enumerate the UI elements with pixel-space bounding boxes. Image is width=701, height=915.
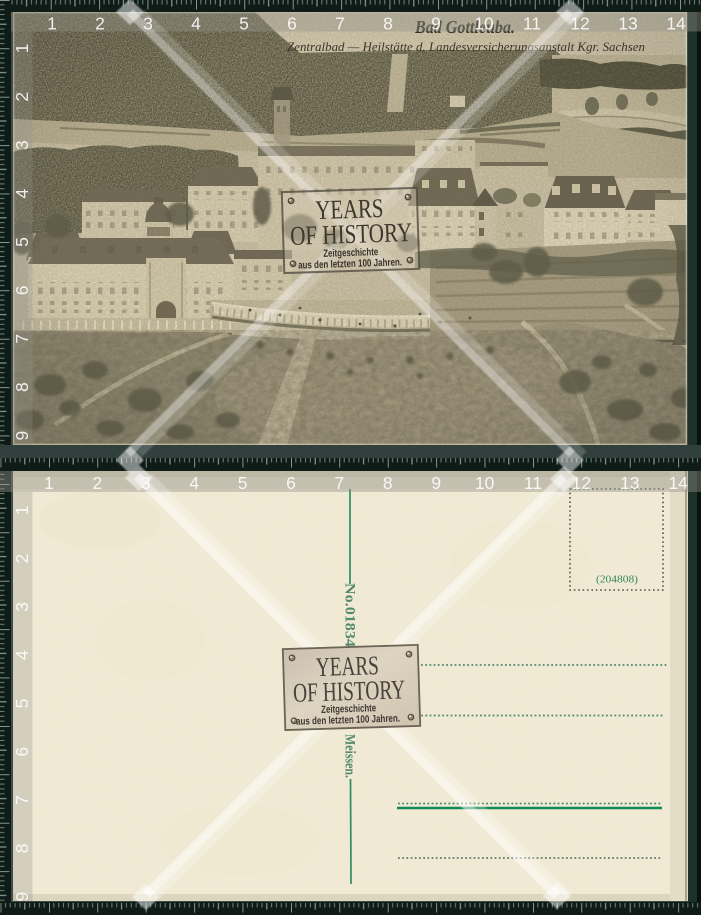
svg-text:14: 14 — [668, 473, 688, 493]
svg-text:11: 11 — [524, 473, 542, 493]
svg-text:6: 6 — [12, 286, 32, 296]
svg-text:3: 3 — [12, 140, 32, 150]
svg-text:OF HISTORY: OF HISTORY — [290, 217, 413, 251]
svg-text:13: 13 — [618, 14, 637, 34]
svg-text:5: 5 — [239, 14, 249, 34]
svg-text:14: 14 — [666, 14, 686, 34]
svg-text:6: 6 — [12, 747, 32, 757]
svg-text:4: 4 — [12, 650, 32, 660]
svg-text:11: 11 — [523, 14, 541, 34]
svg-text:5: 5 — [12, 237, 32, 247]
svg-text:7: 7 — [12, 334, 32, 344]
svg-text:10: 10 — [475, 473, 495, 493]
svg-text:2: 2 — [12, 92, 32, 102]
svg-text:2: 2 — [93, 473, 103, 493]
svg-text:No.018348: No.018348 — [342, 583, 358, 655]
svg-text:3: 3 — [12, 602, 32, 612]
svg-text:4: 4 — [189, 473, 199, 493]
svg-text:5: 5 — [238, 473, 248, 493]
svg-text:5: 5 — [12, 699, 32, 709]
svg-text:10: 10 — [474, 14, 494, 34]
svg-text:8: 8 — [12, 844, 32, 854]
svg-text:(204808): (204808) — [596, 575, 639, 586]
svg-text:Meissen.: Meissen. — [342, 734, 358, 778]
svg-text:2: 2 — [95, 14, 105, 34]
svg-text:8: 8 — [12, 382, 32, 392]
svg-text:1: 1 — [44, 473, 54, 493]
svg-text:4: 4 — [12, 188, 32, 198]
svg-text:8: 8 — [383, 14, 393, 34]
svg-text:6: 6 — [287, 14, 297, 34]
svg-text:8: 8 — [383, 473, 393, 493]
svg-text:2: 2 — [12, 554, 32, 564]
svg-text:4: 4 — [191, 14, 201, 34]
svg-text:7: 7 — [12, 795, 32, 805]
svg-text:9: 9 — [12, 431, 32, 441]
svg-text:1: 1 — [12, 44, 32, 54]
svg-text:1: 1 — [12, 505, 32, 515]
svg-text:9: 9 — [12, 892, 32, 902]
svg-text:7: 7 — [335, 473, 345, 493]
svg-text:9: 9 — [431, 14, 441, 34]
svg-text:6: 6 — [286, 473, 296, 493]
svg-text:1: 1 — [47, 14, 57, 34]
svg-text:13: 13 — [620, 473, 639, 493]
svg-text:7: 7 — [335, 14, 345, 34]
svg-text:9: 9 — [431, 473, 441, 493]
